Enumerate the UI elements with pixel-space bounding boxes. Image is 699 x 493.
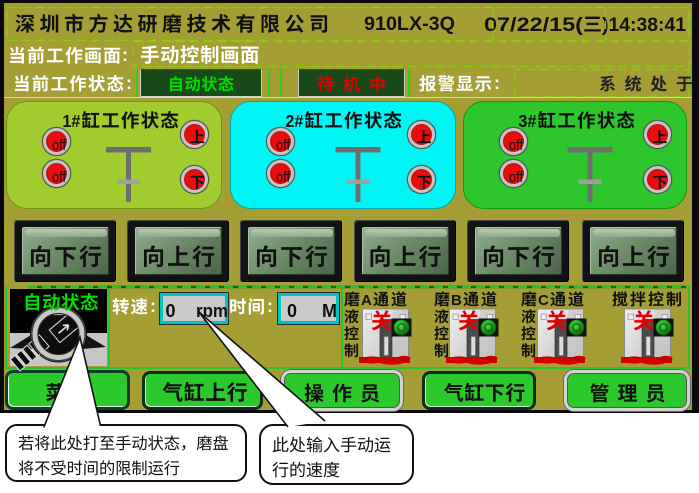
svg-text:3#: 3#	[518, 111, 536, 131]
svg-text:0: 0	[166, 301, 176, 321]
svg-text:910LX-3Q: 910LX-3Q	[364, 14, 455, 35]
svg-text:off: off	[509, 170, 524, 186]
svg-text:off: off	[52, 138, 67, 154]
svg-text::: :	[267, 296, 273, 316]
svg-text:off: off	[509, 138, 524, 154]
svg-text:1#: 1#	[62, 111, 80, 131]
svg-text::: :	[494, 73, 500, 93]
svg-text:off: off	[276, 170, 291, 186]
svg-text:off: off	[52, 170, 67, 186]
svg-text::: :	[126, 73, 132, 93]
svg-text:off: off	[276, 138, 291, 154]
svg-text::: :	[122, 45, 128, 65]
svg-text:A: A	[361, 292, 372, 309]
svg-text:0: 0	[287, 301, 297, 321]
svg-text:C: C	[538, 292, 549, 309]
svg-text:07/22/15(: 07/22/15(	[484, 15, 584, 36]
svg-text:B: B	[451, 292, 462, 309]
svg-text:M: M	[322, 301, 337, 321]
svg-text:rpm: rpm	[196, 301, 228, 321]
svg-text:)14:38:41: )14:38:41	[602, 15, 686, 36]
svg-text::: :	[150, 296, 156, 316]
svg-text:2#: 2#	[285, 111, 303, 131]
